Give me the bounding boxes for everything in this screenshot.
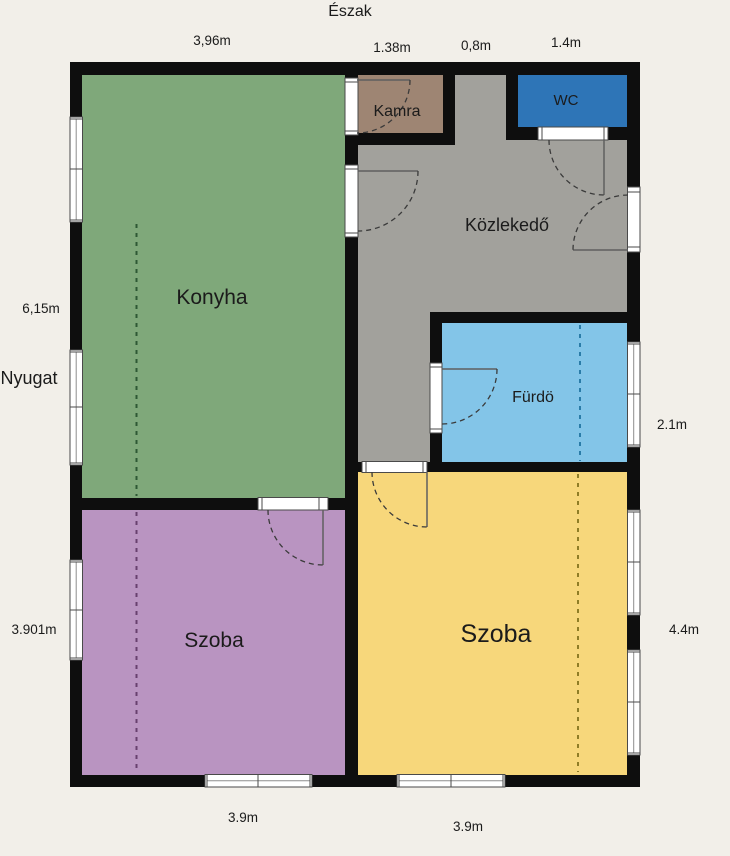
dim-top-wc: 1.4m: [551, 35, 581, 50]
window-left-2: [70, 350, 83, 465]
wall-kamra-bottom: [345, 133, 455, 145]
dim-top-kamra: 1.38m: [373, 40, 411, 55]
dim-right-furdo: 2.1m: [657, 417, 687, 432]
wall-furdo-top: [430, 312, 627, 323]
wc-label: WC: [554, 92, 579, 109]
floor-plan: Észak Nyugat 3,96m 1.38m 0,8m 1.4m 6,15m…: [0, 0, 730, 856]
window-left-3: [70, 560, 83, 660]
window-bottom-yellow: [397, 775, 505, 788]
kamra-label: Kamra: [373, 103, 420, 120]
dim-left-szoba: 3.901m: [11, 622, 56, 637]
szoba-purple-label: Szoba: [184, 629, 244, 652]
kozlekedo-label: Közlekedő: [465, 215, 549, 235]
dim-right-szoba: 4.4m: [669, 622, 699, 637]
window-right-furdo: [628, 342, 641, 447]
dim-left-konyha: 6,15m: [22, 301, 60, 316]
north-label: Észak: [328, 1, 373, 20]
window-bottom-purple: [205, 775, 312, 788]
dim-top-konyha: 3,96m: [193, 33, 231, 48]
window-right-szoba-2: [628, 650, 641, 755]
window-left-1: [70, 117, 83, 222]
dim-top-gap: 0,8m: [461, 38, 491, 53]
window-right-szoba-1: [628, 510, 641, 615]
konyha-label: Konyha: [176, 286, 248, 309]
furdo-label: Fürdö: [512, 389, 554, 406]
dim-bottom-yellow: 3.9m: [453, 819, 483, 834]
dim-bottom-purple: 3.9m: [228, 810, 258, 825]
west-label: Nyugat: [0, 368, 57, 388]
szoba-yellow-label: Szoba: [461, 620, 532, 648]
